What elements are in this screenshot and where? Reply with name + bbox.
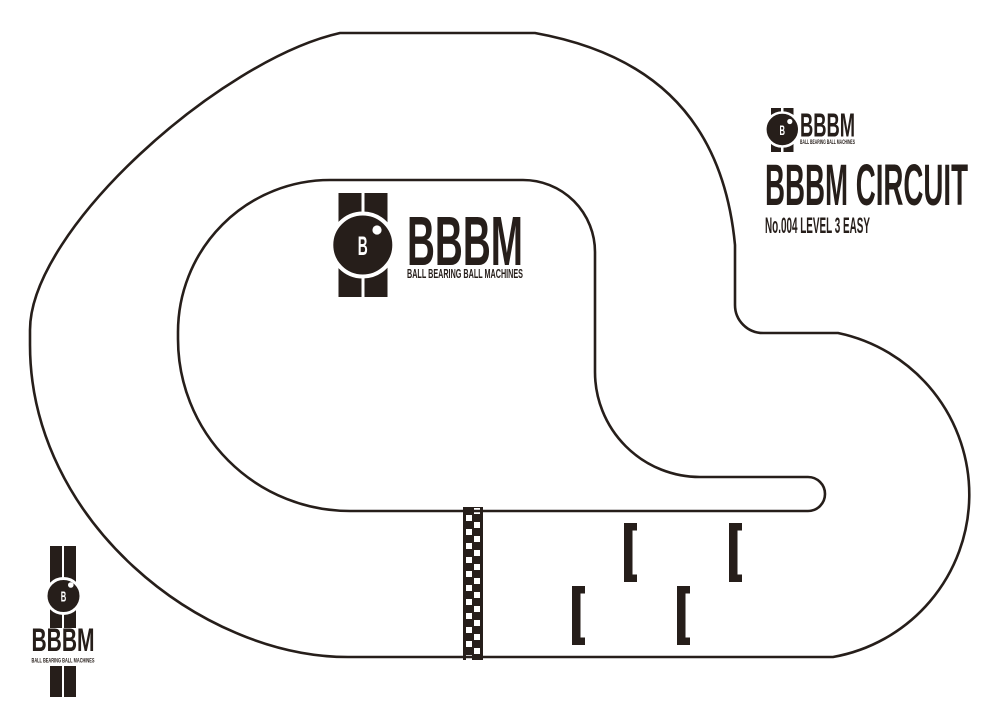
ball-highlight-dot xyxy=(68,582,74,588)
film-bar-icon xyxy=(64,666,76,697)
circuit-subtitle: No.004 LEVEL 3 EASY xyxy=(765,213,870,238)
brand-wordmark: BBBM xyxy=(32,622,95,658)
grid-slot-bracket xyxy=(729,523,742,582)
ball-monogram: B xyxy=(61,589,67,606)
track-svg: B BBBM BALL BEARING BALL MACHINES B BBBM… xyxy=(0,0,1000,707)
ball-highlight-dot xyxy=(372,225,381,234)
start-finish-line xyxy=(463,507,483,660)
brand-tagline: BALL BEARING BALL MACHINES xyxy=(407,266,523,281)
bbbm-logo-small: B BBBM BALL BEARING BALL MACHINES xyxy=(765,107,855,153)
bbbm-logo-vertical: B BBBM BALL BEARING BALL MACHINES xyxy=(32,546,95,697)
circuit-title: BBBM CIRCUIT xyxy=(765,153,968,218)
grid-slot-bracket xyxy=(624,523,637,582)
grid-slot-bracket xyxy=(572,586,585,645)
brand-tagline: BALL BEARING BALL MACHINES xyxy=(800,140,855,146)
circuit-map: B BBBM BALL BEARING BALL MACHINES B BBBM… xyxy=(0,0,1000,707)
header-block: B BBBM BALL BEARING BALL MACHINES BBBM C… xyxy=(765,107,968,239)
ball-highlight-dot xyxy=(787,119,792,124)
ball-monogram: B xyxy=(780,122,786,138)
brand-wordmark: BBBM xyxy=(800,107,855,144)
film-bar-icon xyxy=(50,666,62,697)
grid-slot-bracket xyxy=(677,586,690,645)
bbbm-logo-center: B BBBM BALL BEARING BALL MACHINES xyxy=(331,193,523,297)
ball-monogram: B xyxy=(358,231,368,261)
brand-tagline: BALL BEARING BALL MACHINES xyxy=(32,659,95,665)
